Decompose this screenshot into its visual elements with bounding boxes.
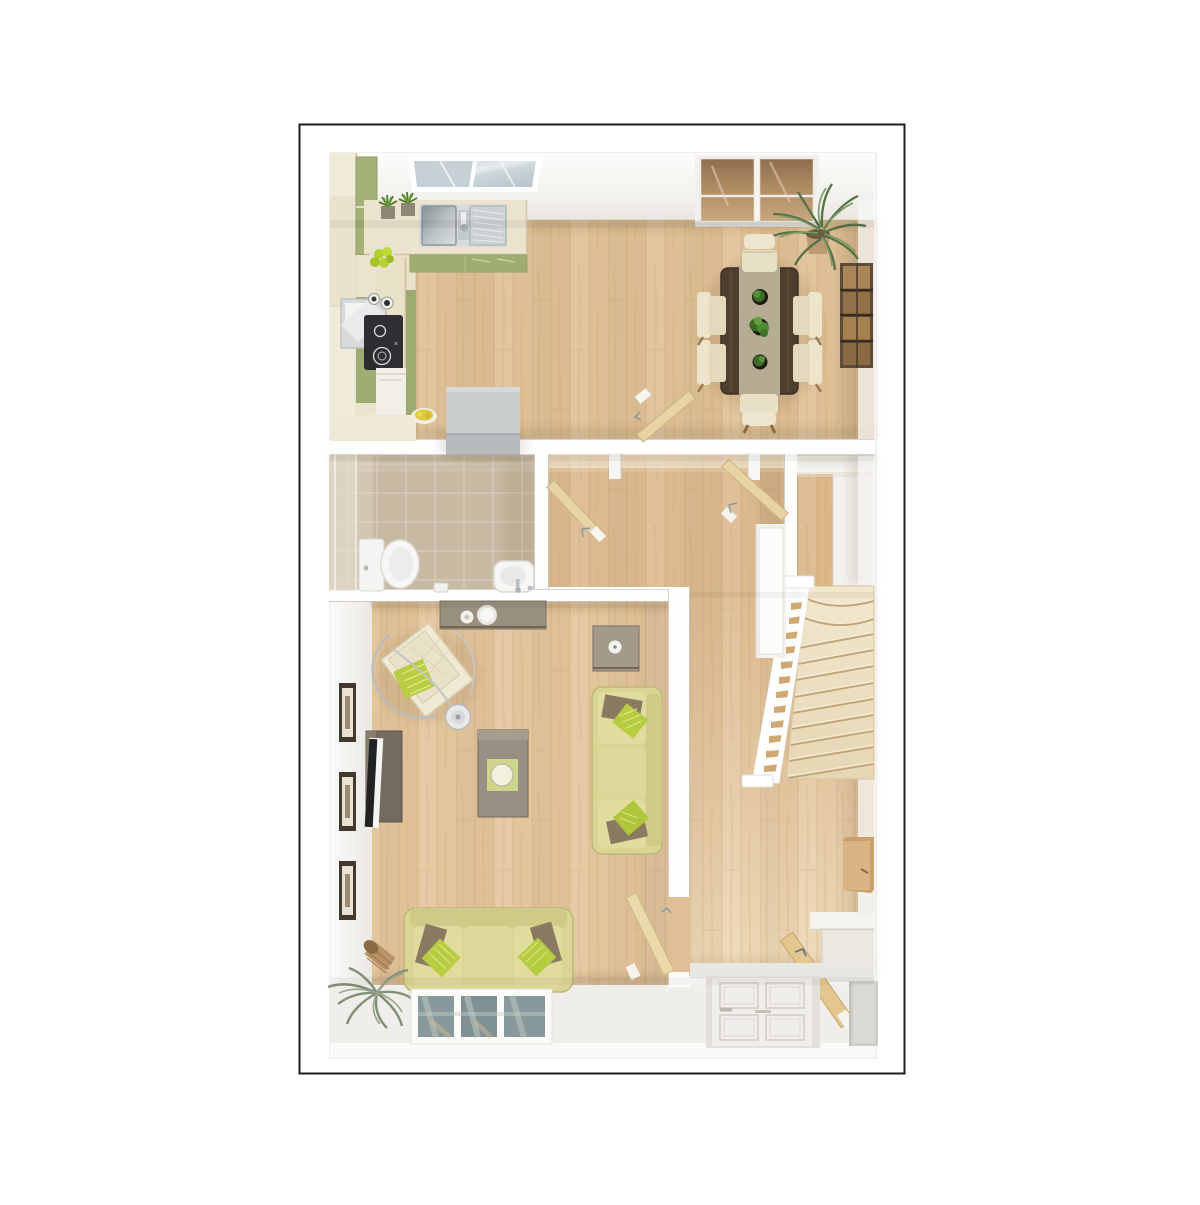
svg-text:×: × (394, 341, 398, 348)
